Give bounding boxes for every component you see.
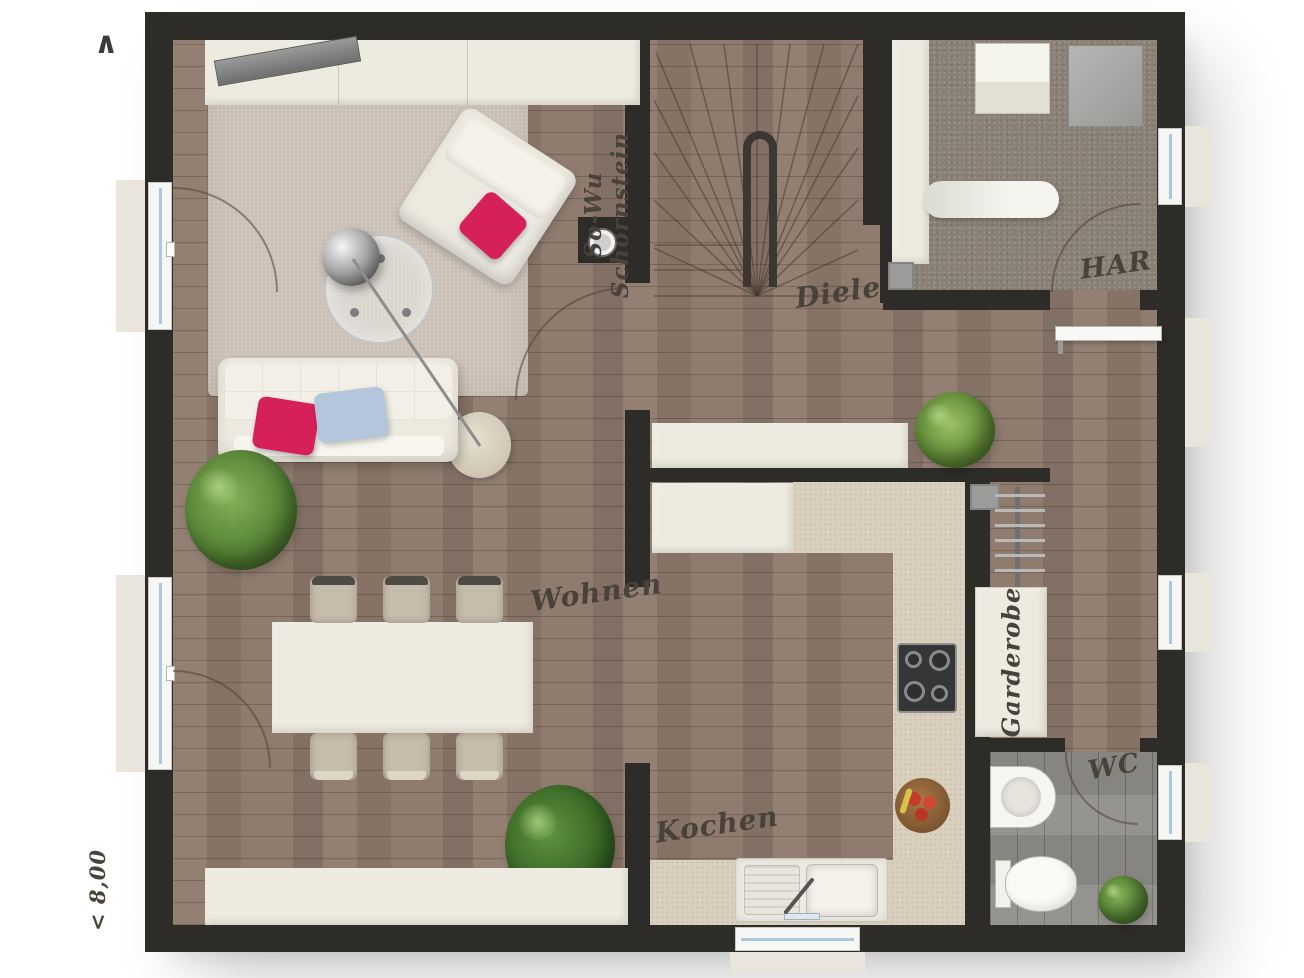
cooktop (897, 643, 957, 713)
window-pad-bottom (730, 952, 865, 974)
coat-hook (995, 509, 1045, 512)
sink-drainboard (744, 865, 800, 915)
north-arrow-icon: ∧ (94, 26, 118, 61)
hall-plant (915, 392, 995, 468)
wall-living-kitchen-lower (625, 763, 650, 925)
dining-table (272, 622, 533, 733)
duct-box-kitchen (970, 484, 1000, 510)
burner-icon (905, 651, 922, 668)
wall-hall-kitchen (650, 468, 1050, 482)
window-hallway (1158, 575, 1182, 650)
floor-plan: Garderobe (0, 0, 1304, 978)
dryer (1068, 45, 1143, 127)
wall-exterior-top (145, 12, 1185, 40)
dining-chair (456, 733, 503, 780)
lower-sideboard (205, 868, 628, 925)
dimension-label-width: < 8,00 (85, 825, 125, 955)
burner-icon (929, 650, 950, 671)
kitchen-upper-cabinet (652, 423, 908, 468)
washing-machine (975, 43, 1050, 114)
wc-toilet (1005, 856, 1077, 912)
dining-chair (383, 576, 430, 623)
stair-handrail (743, 131, 777, 287)
chimney-label-line1: So-Wu (580, 70, 607, 360)
fruit-bowl (895, 778, 950, 833)
window-handle (166, 666, 175, 681)
front-door-leaf (1055, 326, 1162, 341)
terrace-pad-left-2 (116, 575, 145, 772)
sideboard-seam (467, 40, 468, 105)
apple-icon (923, 796, 936, 809)
chimney-label: So-Wu Schornstein (580, 70, 650, 360)
burner-icon (931, 685, 948, 702)
wall-utility-bottom-stub (1140, 290, 1157, 310)
table-leg (402, 308, 411, 317)
window-handle (166, 242, 175, 257)
dining-chair (383, 733, 430, 780)
wall-living-kitchen-mid (625, 410, 650, 587)
coat-hook (995, 554, 1045, 557)
duct-box-utility (888, 262, 914, 290)
wardrobe-cabinet: Garderobe (975, 587, 1047, 737)
dining-chair (456, 576, 503, 623)
front-door-handle (1058, 341, 1063, 354)
window-utility (1158, 128, 1182, 205)
coat-hook (995, 569, 1045, 572)
wall-exterior-bottom (145, 925, 1185, 952)
wc-plant (1098, 876, 1148, 924)
apple-icon (915, 808, 928, 821)
living-room-plant (185, 450, 297, 570)
window-pad-right-2 (1185, 573, 1211, 652)
wall-wc-top-stub (1140, 738, 1157, 752)
sofa-pillow-blue (313, 386, 389, 444)
dining-chair (310, 576, 357, 623)
ironing-board (923, 181, 1059, 218)
burner-icon (904, 681, 925, 702)
coat-hook (995, 539, 1045, 542)
wall-wc-top (965, 738, 1065, 752)
wall-utility-bottom (883, 290, 1050, 310)
coat-hook (995, 524, 1045, 527)
wc-sink-bowl (1001, 777, 1041, 817)
window-pad-right-1 (1185, 126, 1211, 207)
sink-faucet (784, 913, 820, 920)
kitchen-sink-unit (735, 858, 888, 922)
window-wc (1158, 765, 1182, 840)
window-pad-right-3 (1185, 763, 1211, 842)
dining-chair (310, 733, 357, 780)
utility-tall-cabinet (892, 40, 929, 264)
wall-exterior-left (145, 40, 173, 925)
sofa-pillow-pink (251, 395, 320, 456)
wardrobe-label: Garderobe (997, 587, 1026, 737)
terrace-pad-left-1 (116, 180, 145, 332)
sink-basin (806, 864, 878, 917)
kitchen-counter-left (652, 483, 793, 553)
table-leg (350, 308, 359, 317)
arc-lamp-globe (322, 228, 380, 286)
coat-hook (995, 494, 1045, 497)
chimney-label-line2: Schornstein (607, 70, 634, 360)
wc-sink (990, 766, 1056, 828)
window-kitchen (735, 927, 860, 951)
